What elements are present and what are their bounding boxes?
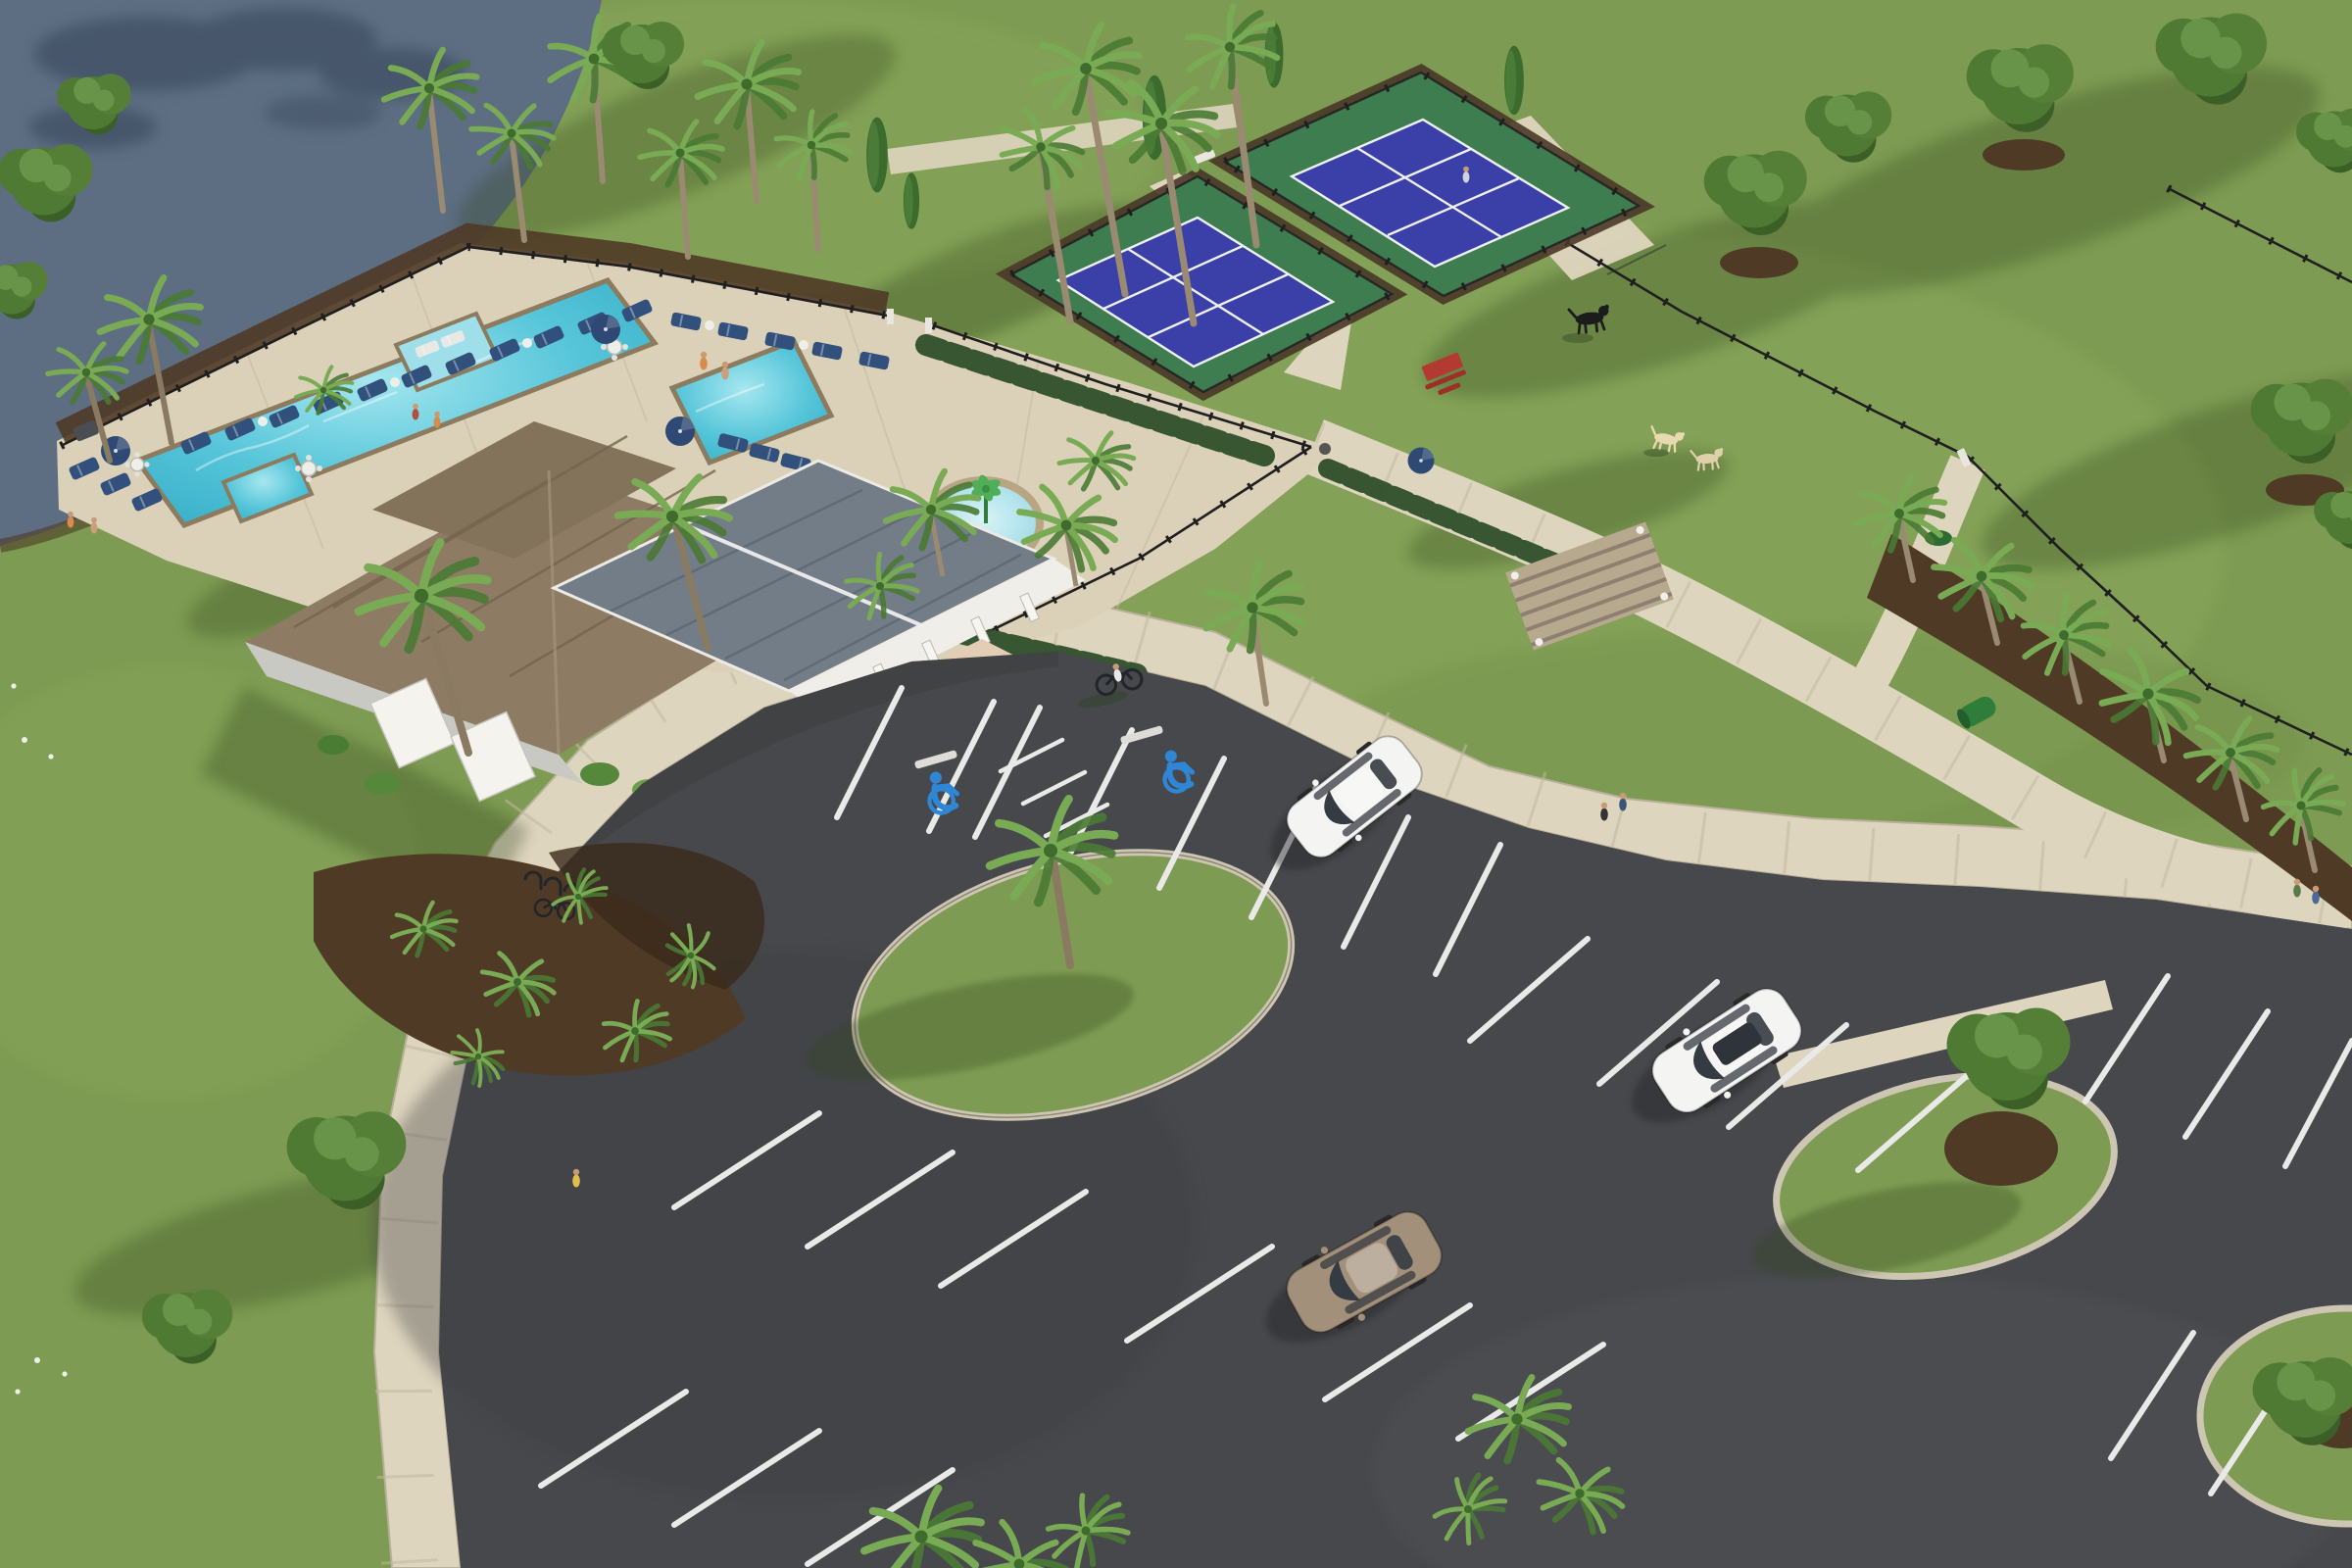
person-walking — [1619, 793, 1627, 811]
aerial-rendering — [0, 0, 2352, 1568]
scene-canvas — [0, 0, 2352, 1568]
person-walking — [572, 1169, 580, 1188]
person-sunbathing — [68, 512, 74, 528]
person-poolside — [721, 362, 729, 380]
person-poolside — [700, 352, 708, 370]
bench-by-courts — [1463, 167, 1470, 183]
person-seated — [413, 404, 419, 420]
person-walking — [1600, 803, 1608, 821]
person-sunbathing — [91, 517, 98, 534]
person-seated — [434, 412, 441, 428]
person-walking — [2293, 879, 2301, 898]
person-walking — [2312, 886, 2320, 905]
trash-can — [1319, 443, 1331, 455]
